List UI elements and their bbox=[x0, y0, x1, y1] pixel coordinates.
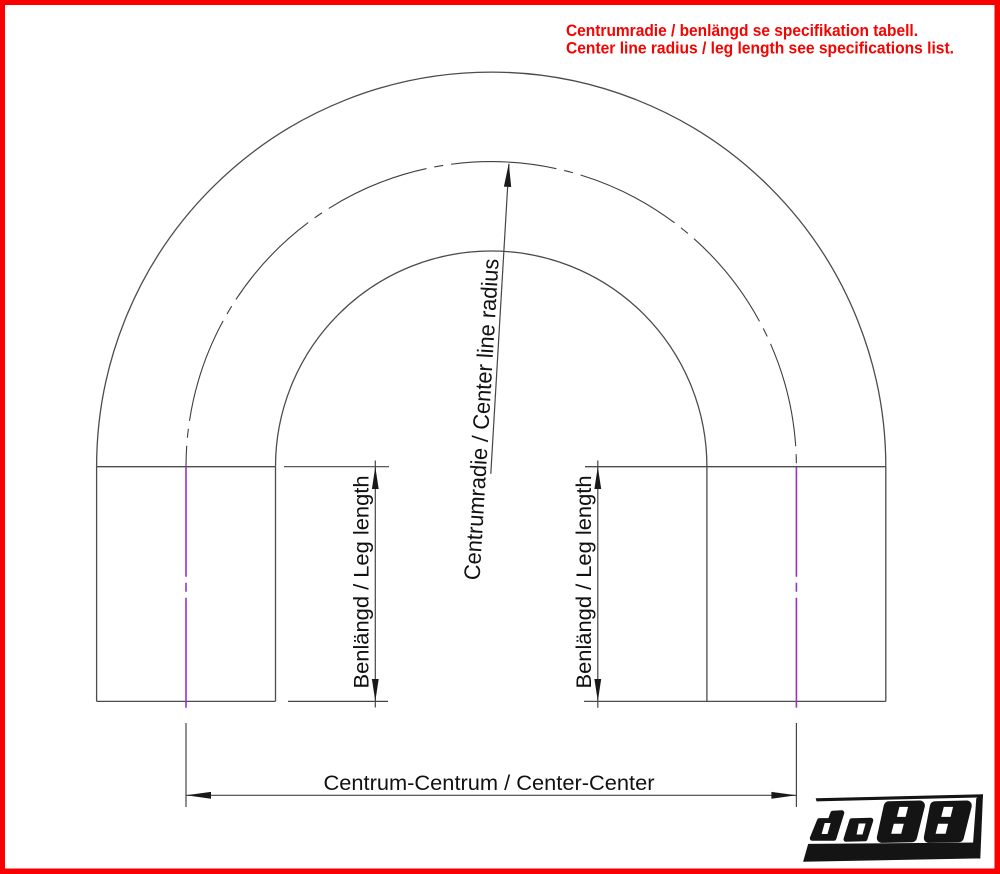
svg-text:Benlängd / Leg length: Benlängd / Leg length bbox=[351, 476, 374, 689]
svg-text:Centrumradie / benlängd se spe: Centrumradie / benlängd se specifikation… bbox=[566, 21, 918, 40]
svg-text:Centrum-Centrum / Center-Cente: Centrum-Centrum / Center-Center bbox=[324, 771, 655, 795]
svg-text:Center line radius / leg lengt: Center line radius / leg length see spec… bbox=[566, 38, 954, 57]
svg-text:Benlängd / Leg length: Benlängd / Leg length bbox=[573, 476, 596, 689]
